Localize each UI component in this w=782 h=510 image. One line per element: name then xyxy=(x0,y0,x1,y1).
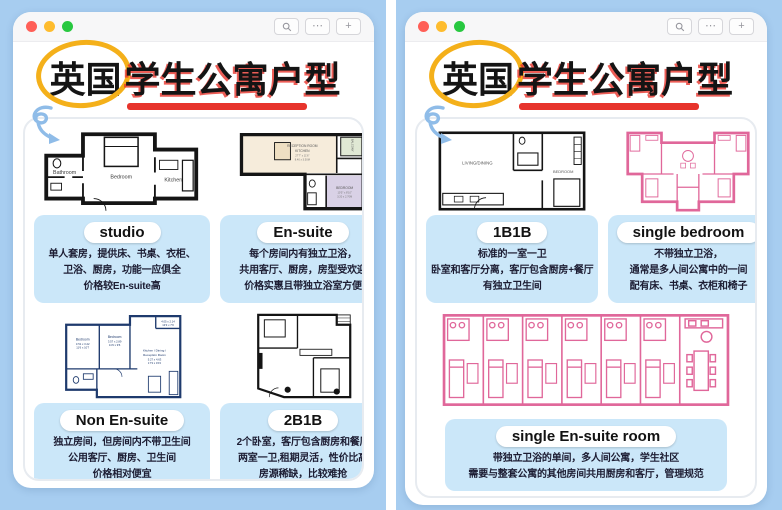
card-line: 两室一卫,租期灵活，性价比高 xyxy=(225,451,364,467)
type-pill-non-en-suite: Non En-suite xyxy=(60,410,185,431)
room-label: Reception Room xyxy=(143,353,166,357)
yellow-circle-decoration xyxy=(34,36,135,112)
search-icon xyxy=(282,22,292,32)
card-line: 卧室和客厅分离，客厅包含厨房+餐厅 xyxy=(431,263,593,279)
type-card-en-suite: En-suite 每个房间内有独立卫浴， 共用客厅、厨房，房型受欢迎 价格实惠且… xyxy=(220,215,364,303)
type-pill-1b1b: 1B1B xyxy=(477,222,547,243)
window-chrome: ⋯ + xyxy=(405,12,767,42)
type-pill-en-suite: En-suite xyxy=(257,222,348,243)
room-label: Bedroom xyxy=(110,175,132,181)
curly-arrow-icon xyxy=(27,104,65,144)
red-underline-decoration xyxy=(127,103,307,110)
search-icon xyxy=(675,22,685,32)
card-line: 房源稀缺，比较难抢 xyxy=(225,467,364,481)
card-line: 价格实惠且带独立浴室方便 xyxy=(225,279,364,295)
card-line: 每个房间内有独立卫浴， xyxy=(225,247,364,263)
room-dims: 3.20 x 2.70M xyxy=(337,194,352,198)
floorplan-2b1b xyxy=(220,309,364,403)
screenshot-left: ⋯ + 英国 学生公寓户型 xyxy=(0,0,386,510)
browser-window-left: ⋯ + 英国 学生公寓户型 xyxy=(13,12,374,488)
more-button[interactable]: ⋯ xyxy=(698,18,723,35)
close-button[interactable] xyxy=(418,21,429,32)
type-card-studio: studio 单人套房，提供床、书桌、衣柜、 卫浴、厨房，功能一应俱全 价格较E… xyxy=(34,215,210,303)
room-dims: 13'3 x 7'0 xyxy=(162,323,174,327)
browser-window-right: ⋯ + 英国 学生公寓户型 xyxy=(405,12,767,505)
room-label: KITCHEN xyxy=(295,149,310,153)
card-line: 标准的一室一卫 xyxy=(431,247,593,263)
title-circled-text: 英国 xyxy=(439,51,517,103)
type-card-non-en-suite: Non En-suite 独立房间，但房间内不带卫生间 公用客厅、厨房、卫生间 … xyxy=(34,403,210,481)
red-underline-decoration xyxy=(519,103,699,110)
room-dims: 11'6 x 10'7 xyxy=(76,346,89,350)
type-pill-studio: studio xyxy=(84,222,161,243)
floorplan-single-en-suite-room xyxy=(426,309,746,411)
room-dims: 4.05 x 2.14 xyxy=(161,319,175,323)
card-line: 卫浴、厨房，功能一应俱全 xyxy=(39,263,205,279)
card-line: 独立房间，但房间内不带卫生间 xyxy=(39,435,205,451)
card-line: 公用客厅、厨房、卫生间 xyxy=(39,451,205,467)
page-title: 英国 学生公寓户型 xyxy=(13,51,374,113)
card-line: 需要与整套公寓的其他房间共用厨房和客厅，管理规范 xyxy=(450,467,722,483)
content-panel: Bathroom Bedroom Kitchen studio 单人套房，提供床… xyxy=(23,117,364,481)
title-circled-text: 英国 xyxy=(46,51,124,103)
chrome-actions: ⋯ + xyxy=(274,18,361,35)
cell-1b1b: LIVING/DINING BEDROOM 1B1B 标准的一室一卫 卧室和客厅… xyxy=(426,127,598,303)
more-button[interactable]: ⋯ xyxy=(305,18,330,35)
room-label: BEDROOM xyxy=(336,186,353,190)
room-label: LIVING/DINING xyxy=(462,161,493,166)
cell-en-suite: RECEPTION ROOM KITCHEN 27'7" x 11'6" 8.4… xyxy=(220,127,364,303)
room-label: RECEPTION ROOM xyxy=(287,144,318,148)
room-label: Kitchen / Dining / xyxy=(143,349,166,353)
yellow-circle-decoration xyxy=(426,36,527,112)
title-subject: 学生公寓户型 xyxy=(125,59,341,100)
card-line: 通常是多人间公寓中的一间 xyxy=(613,263,757,279)
search-button[interactable] xyxy=(274,18,299,35)
card-line: 配有床、书桌、衣柜和椅子 xyxy=(613,279,757,295)
cell-studio: Bathroom Bedroom Kitchen studio 单人套房，提供床… xyxy=(34,127,210,303)
title-rest-text: 学生公寓户型 xyxy=(125,51,341,103)
minimize-button[interactable] xyxy=(44,21,55,32)
card-line: 不带独立卫浴， xyxy=(613,247,757,263)
room-dims: 3.51 x 3.22 xyxy=(76,342,90,346)
room-dims: 5.27 x 4.63 xyxy=(148,357,162,361)
traffic-lights xyxy=(26,21,73,32)
page-title: 英国 学生公寓户型 xyxy=(405,51,767,113)
type-card-single-bedroom: single bedroom 不带独立卫浴， 通常是多人间公寓中的一间 配有床、… xyxy=(608,215,757,303)
card-line: 单人套房，提供床、书桌、衣柜、 xyxy=(39,247,205,263)
new-tab-button[interactable]: + xyxy=(729,18,754,35)
screenshot-right: ⋯ + 英国 学生公寓户型 xyxy=(396,0,782,510)
type-card-single-en-suite-room: single En-suite room 带独立卫浴的单间，多人间公寓，学生社区… xyxy=(445,419,727,491)
card-line: 共用客厅、厨房，房型受欢迎 xyxy=(225,263,364,279)
floorplan-non-en-suite: Bedroom 3.51 x 3.22 11'6 x 10'7 Bedroom … xyxy=(34,309,210,403)
search-button[interactable] xyxy=(667,18,692,35)
new-tab-button[interactable]: + xyxy=(336,18,361,35)
minimize-button[interactable] xyxy=(436,21,447,32)
curly-arrow-icon xyxy=(419,104,457,144)
card-line: 价格较En-suite高 xyxy=(39,279,205,295)
chrome-actions: ⋯ + xyxy=(667,18,754,35)
room-label: Bedroom xyxy=(108,335,122,339)
page: ⋯ + 英国 学生公寓户型 xyxy=(0,0,782,510)
floorplan-en-suite: RECEPTION ROOM KITCHEN 27'7" x 11'6" 8.4… xyxy=(220,127,364,215)
title-subject: 学生公寓户型 xyxy=(517,59,733,100)
zoom-button[interactable] xyxy=(454,21,465,32)
type-card-1b1b: 1B1B 标准的一室一卫 卧室和客厅分离，客厅包含厨房+餐厅 有独立卫生间 xyxy=(426,215,598,303)
type-pill-2b1b: 2B1B xyxy=(268,410,338,431)
zoom-button[interactable] xyxy=(62,21,73,32)
cell-non-en-suite: Bedroom 3.51 x 3.22 11'6 x 10'7 Bedroom … xyxy=(34,309,210,481)
type-pill-single-bedroom: single bedroom xyxy=(617,222,757,243)
close-button[interactable] xyxy=(26,21,37,32)
room-dims: 10'5" x 8'10" xyxy=(337,190,351,194)
traffic-lights xyxy=(418,21,465,32)
room-dims: 3.57 x 2.89 xyxy=(108,340,122,344)
card-line: 价格相对便宜 xyxy=(39,467,205,481)
room-dims: 8.40 x 3.50M xyxy=(295,157,310,161)
window-chrome: ⋯ + xyxy=(13,12,374,42)
cell-2b1b: 2B1B 2个卧室，客厅包含厨房和餐厅 两室一卫,租期灵活，性价比高 房源稀缺，… xyxy=(220,309,364,481)
room-label: BEDROOM xyxy=(553,169,573,174)
room-label: Bathroom xyxy=(53,170,77,176)
cell-single-bedroom: single bedroom 不带独立卫浴， 通常是多人间公寓中的一间 配有床、… xyxy=(608,127,757,303)
page-gap xyxy=(386,0,396,510)
card-line: 有独立卫生间 xyxy=(431,279,593,295)
content-panel: LIVING/DINING BEDROOM 1B1B 标准的一室一卫 卧室和客厅… xyxy=(415,117,757,498)
room-dims: 17'3 x 15'2 xyxy=(148,361,162,365)
type-card-2b1b: 2B1B 2个卧室，客厅包含厨房和餐厅 两室一卫,租期灵活，性价比高 房源稀缺，… xyxy=(220,403,364,481)
card-line: 2个卧室，客厅包含厨房和餐厅 xyxy=(225,435,364,451)
type-pill-single-en-suite-room: single En-suite room xyxy=(496,426,676,447)
title-rest-text: 学生公寓户型 xyxy=(517,51,733,103)
room-label: Bedroom xyxy=(76,338,90,342)
room-label: BALCONY xyxy=(350,139,354,152)
floorplan-single-bedroom xyxy=(608,127,757,215)
card-line: 带独立卫浴的单间，多人间公寓，学生社区 xyxy=(450,451,722,467)
room-dims: 11'9 x 9'6 xyxy=(109,343,121,347)
room-label: Kitchen xyxy=(164,178,182,184)
room-dims: 27'7" x 11'6" xyxy=(295,153,309,157)
